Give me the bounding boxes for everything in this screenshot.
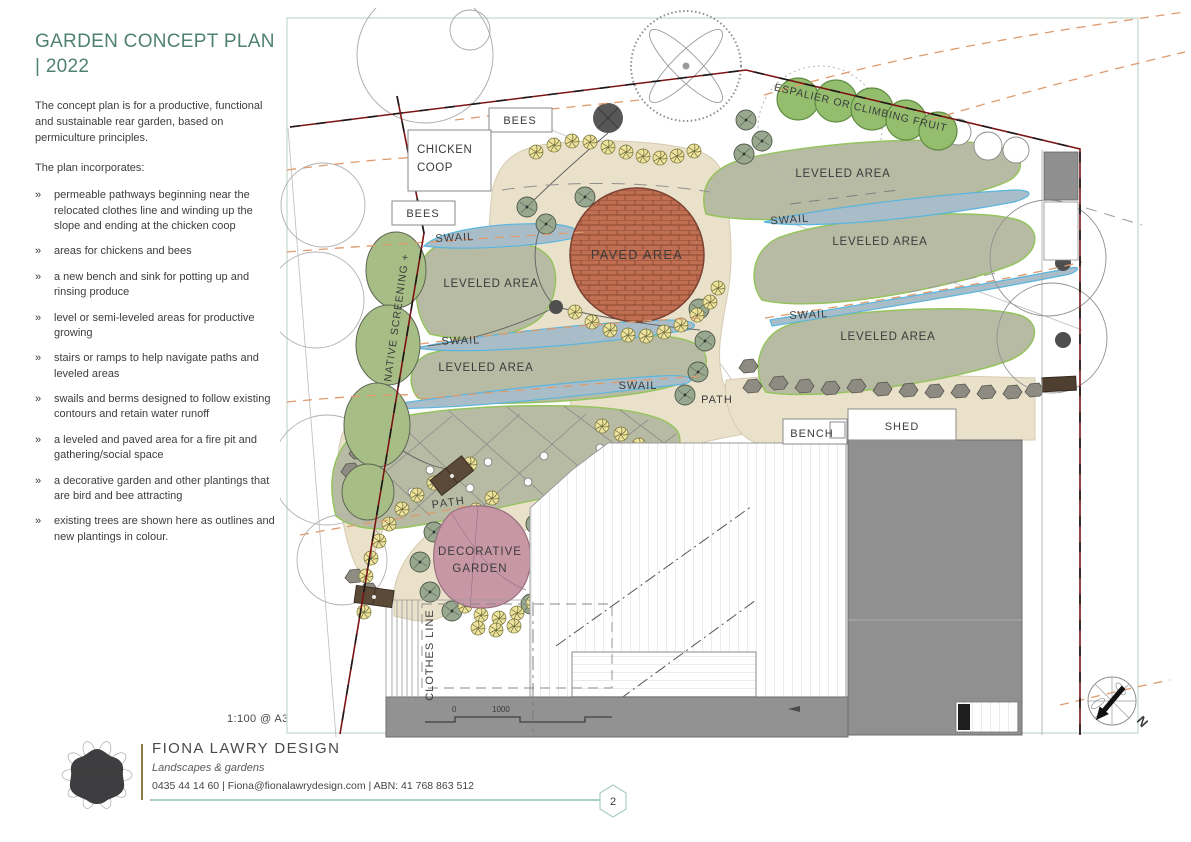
house-deck	[530, 443, 846, 699]
paved-area-label: PAVED AREA	[591, 248, 683, 262]
bullet-marker: »	[35, 514, 45, 545]
clothes-line-label: CLOTHES LINE	[424, 609, 436, 700]
logo-text-1: FIONA LAWRY	[72, 769, 122, 776]
company-logo: FIONA LAWRY DESIGN	[56, 734, 138, 816]
bullet-text: a leveled and paved area for a fire pit …	[54, 433, 275, 464]
decorative-garden-label-1: DECORATIVE	[438, 546, 522, 558]
company-name: FIONA LAWRY DESIGN	[152, 740, 340, 757]
logo-text-2: DESIGN	[84, 779, 110, 784]
bullet-marker: »	[35, 351, 45, 382]
list-item: »level or semi-leveled areas for product…	[35, 311, 275, 342]
path-label: PATH	[701, 394, 733, 406]
footer-rule	[150, 799, 600, 801]
bullet-text: existing trees are shown here as outline…	[54, 514, 275, 545]
swail-label: SWAIL	[441, 334, 480, 347]
list-item: »existing trees are shown here as outlin…	[35, 514, 275, 545]
leveled-area-label: LEVELED AREA	[840, 331, 935, 343]
list-item: »swails and berms designed to follow exi…	[35, 392, 275, 423]
plan-drawing: BEES CHICKEN COOP BEES SWAIL SWAIL SWAIL…	[280, 8, 1191, 740]
bullet-marker: »	[35, 311, 45, 342]
shed-building	[848, 440, 1022, 735]
page-title: GARDEN CONCEPT PLAN | 2022	[35, 30, 275, 79]
house-wall	[386, 697, 848, 737]
bullet-text: stairs or ramps to help navigate paths a…	[54, 351, 275, 382]
decorative-garden-label-2: GARDEN	[452, 563, 507, 575]
bullet-text: a new bench and sink for potting up and …	[54, 270, 275, 301]
bees-label-top: BEES	[503, 115, 536, 127]
swail-label: SWAIL	[435, 231, 474, 245]
bench-label: BENCH	[790, 428, 834, 440]
chicken-coop-box	[408, 130, 491, 191]
bullet-text: a decorative garden and other plantings …	[54, 474, 275, 505]
bullet-text: swails and berms designed to follow exis…	[54, 392, 275, 423]
footer-divider	[141, 744, 143, 800]
list-item: »stairs or ramps to help navigate paths …	[35, 351, 275, 382]
chicken-coop-label-1: CHICKEN	[417, 144, 472, 156]
list-item: »a new bench and sink for potting up and…	[35, 270, 275, 301]
shed-label: SHED	[885, 421, 920, 433]
bullet-text: permeable pathways beginning near the re…	[54, 188, 275, 234]
incorporates-heading: The plan incorporates:	[35, 162, 275, 174]
list-item: »permeable pathways beginning near the r…	[35, 188, 275, 234]
bullet-marker: »	[35, 244, 45, 259]
list-item: »a leveled and paved area for a fire pit…	[35, 433, 275, 464]
list-item: »a decorative garden and other plantings…	[35, 474, 275, 505]
bullet-list: »permeable pathways beginning near the r…	[35, 188, 275, 545]
chicken-coop-label-2: COOP	[417, 162, 453, 174]
bullet-marker: »	[35, 270, 45, 301]
page-number-badge: 2	[598, 784, 628, 818]
garden-concept-plan-page: GARDEN CONCEPT PLAN | 2022 The concept p…	[0, 0, 1191, 842]
bullet-marker: »	[35, 188, 45, 234]
bullet-text: level or semi-leveled areas for producti…	[54, 311, 275, 342]
scale-zero-label: 0	[452, 705, 457, 714]
intro-paragraph: The concept plan is for a productive, fu…	[35, 99, 275, 147]
swail-label: SWAIL	[619, 380, 658, 392]
leveled-area-label: LEVELED AREA	[795, 168, 890, 180]
bullet-marker: »	[35, 433, 45, 464]
page-number: 2	[610, 796, 616, 808]
contact-info: 0435 44 14 60 | Fiona@fionalawrydesign.c…	[152, 780, 474, 792]
leveled-area-label: LEVELED AREA	[443, 278, 538, 290]
bees-label-left: BEES	[406, 208, 439, 220]
scale-thousand-label: 1000	[492, 705, 510, 714]
leveled-area-label: LEVELED AREA	[832, 236, 927, 248]
bullet-marker: »	[35, 392, 45, 423]
bullet-text: areas for chickens and bees	[54, 244, 192, 259]
leveled-area-label: LEVELED AREA	[438, 362, 533, 374]
list-item: »areas for chickens and bees	[35, 244, 275, 259]
sidebar: GARDEN CONCEPT PLAN | 2022 The concept p…	[35, 30, 275, 555]
bullet-marker: »	[35, 474, 45, 505]
company-tagline: Landscapes & gardens	[152, 762, 265, 774]
swail-label: SWAIL	[789, 308, 828, 322]
